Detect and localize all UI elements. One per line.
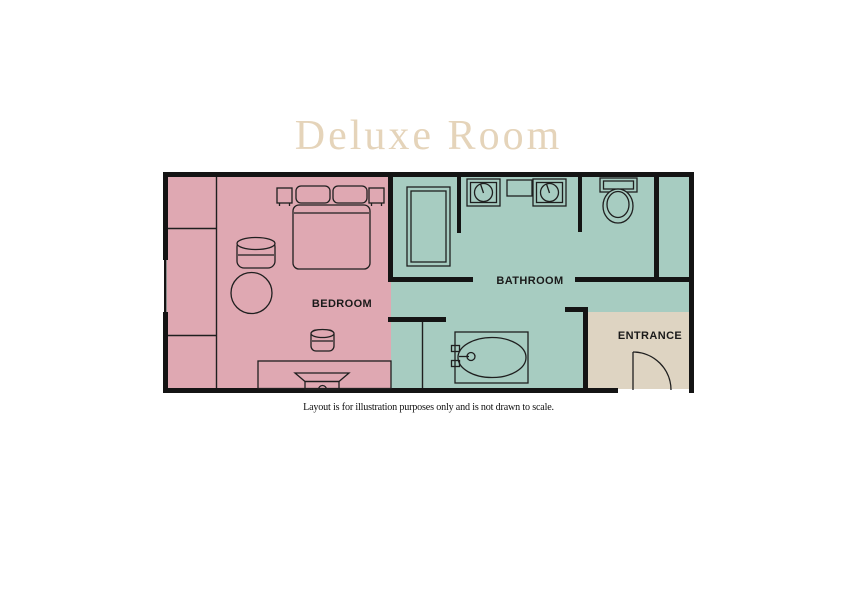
bedroom-area [167, 176, 391, 389]
bedroom-label: BEDROOM [312, 298, 372, 310]
entrance-area [588, 312, 690, 389]
entrance-label: ENTRANCE [618, 330, 682, 342]
floor-plan: BEDROOM BATHROOM ENTRANCE [163, 172, 694, 393]
bathroom-south-wall-left [388, 277, 473, 282]
disclaimer-caption: Layout is for illustration purposes only… [147, 401, 709, 413]
bathroom-south-wall-right [575, 277, 694, 282]
toilet-compartment-wall [654, 177, 659, 282]
page: Deluxe Room [0, 0, 842, 596]
bathroom-label: BATHROOM [496, 275, 563, 287]
bedroom-bathroom-wall [388, 172, 393, 282]
sink-partition-left [457, 177, 461, 233]
page-title: Deluxe Room [163, 112, 694, 160]
niche-wall [388, 317, 446, 322]
window-wall [164, 258, 167, 314]
sink-partition-right [578, 177, 582, 232]
entrance-wall [583, 307, 588, 388]
